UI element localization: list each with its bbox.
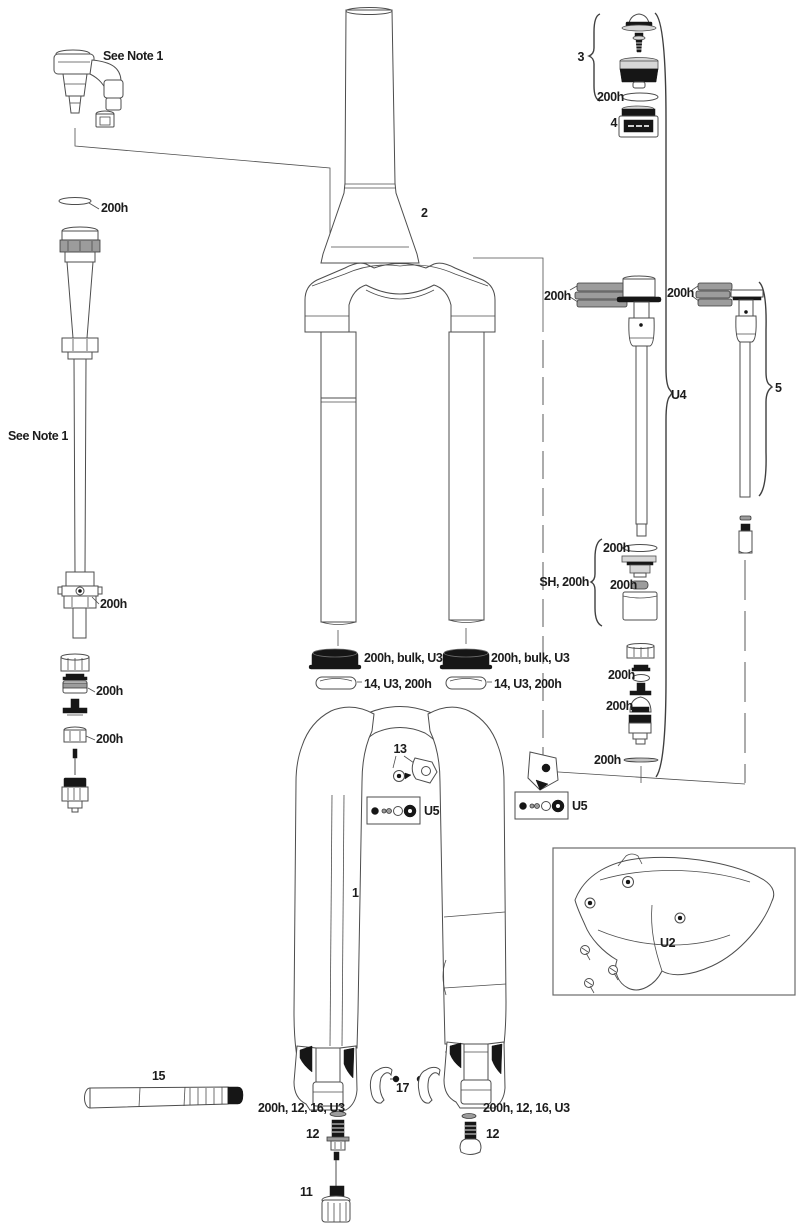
air-valve-cap xyxy=(619,106,658,137)
shaft-washer-right-label: 200h, 12, 16, U3 xyxy=(483,1101,570,1115)
axle-label: 15 xyxy=(152,1069,166,1083)
crush-washer-top-left xyxy=(59,198,99,210)
note-left-label: See Note 1 xyxy=(8,429,68,443)
fender-bolt-and-clip xyxy=(393,756,437,783)
rebound-knob-label: 11 xyxy=(300,1185,313,1199)
group3-oring-label: 200h xyxy=(597,90,624,104)
dust-seal-right xyxy=(440,649,492,669)
air-top-cap-oring xyxy=(622,93,658,101)
lowers-label: 1 xyxy=(352,886,359,900)
dust-seal-left xyxy=(309,649,361,669)
rebound-shims-label: 200h xyxy=(608,668,635,682)
dust-seal-right-label: 200h, bulk, U3 xyxy=(491,651,570,665)
u4-glide-rings xyxy=(570,283,627,307)
u5-kit-right xyxy=(515,792,568,819)
dust-seal-left-label: 200h, bulk, U3 xyxy=(364,651,443,665)
spring-group-label: 5 xyxy=(775,381,782,395)
left-piston-label: 200h xyxy=(96,684,123,698)
fork-crown xyxy=(305,263,495,332)
foam-ring-right-label: 14, U3, 200h xyxy=(494,677,561,691)
foam-ring-right xyxy=(446,677,492,689)
shaft-bolt-right-group xyxy=(460,1114,481,1155)
steerer-label: 2 xyxy=(421,206,428,220)
u4-rings-label: 200h xyxy=(544,289,571,303)
spring-small-parts xyxy=(739,516,752,553)
foam-ring-left xyxy=(316,677,362,689)
u4-group-label: U4 xyxy=(671,388,687,402)
shaft-bolt-right-label: 12 xyxy=(486,1127,500,1141)
rebound-knob-assembly xyxy=(322,1152,350,1222)
fender-bolt-label: 13 xyxy=(393,742,407,756)
shaft-bolt-left-label: 12 xyxy=(306,1127,320,1141)
seal-head-label: 200h xyxy=(100,597,127,611)
stanchion-left xyxy=(321,332,356,646)
rebound-dome-label: 200h xyxy=(606,699,633,713)
u5-right-label: U5 xyxy=(572,799,588,813)
left-rebound-stack xyxy=(61,654,95,812)
sh-oring-bottom-label: 200h xyxy=(610,578,637,592)
fork-exploded-diagram: See Note 1 200h See Note 1 200h xyxy=(0,0,800,1225)
left-nut-label: 200h xyxy=(96,732,123,746)
u5-kit-left xyxy=(367,797,420,824)
foam-ring-left-label: 14, U3, 200h xyxy=(364,677,431,691)
u4-damper-shaft xyxy=(617,276,661,536)
stanchion-right xyxy=(449,332,484,644)
spring-rings-label: 200h xyxy=(667,286,694,300)
spring-shaft xyxy=(731,282,772,497)
note-top-label: See Note 1 xyxy=(103,49,163,63)
sh-oring-top-label: 200h xyxy=(603,541,630,555)
shaft-washer-left-label: 200h, 12, 16, U3 xyxy=(258,1101,345,1115)
fender-label: U2 xyxy=(660,936,676,950)
steerer-tube xyxy=(321,8,419,264)
thru-axle xyxy=(85,1087,244,1108)
shaft-bolt-left-group xyxy=(327,1112,349,1151)
hose-guides-label: 17 xyxy=(396,1081,410,1095)
u5-left-label: U5 xyxy=(424,804,440,818)
rebound-washer-label: 200h xyxy=(594,753,621,767)
valve-cap-label: 4 xyxy=(610,116,617,130)
sh-group-label: SH, 200h xyxy=(539,575,589,589)
fender-kit xyxy=(553,848,795,995)
air-top-cap-group xyxy=(589,14,658,101)
group3-label: 3 xyxy=(577,50,584,64)
crush-washer-label: 200h xyxy=(101,201,128,215)
spring-glide-rings xyxy=(692,283,732,306)
